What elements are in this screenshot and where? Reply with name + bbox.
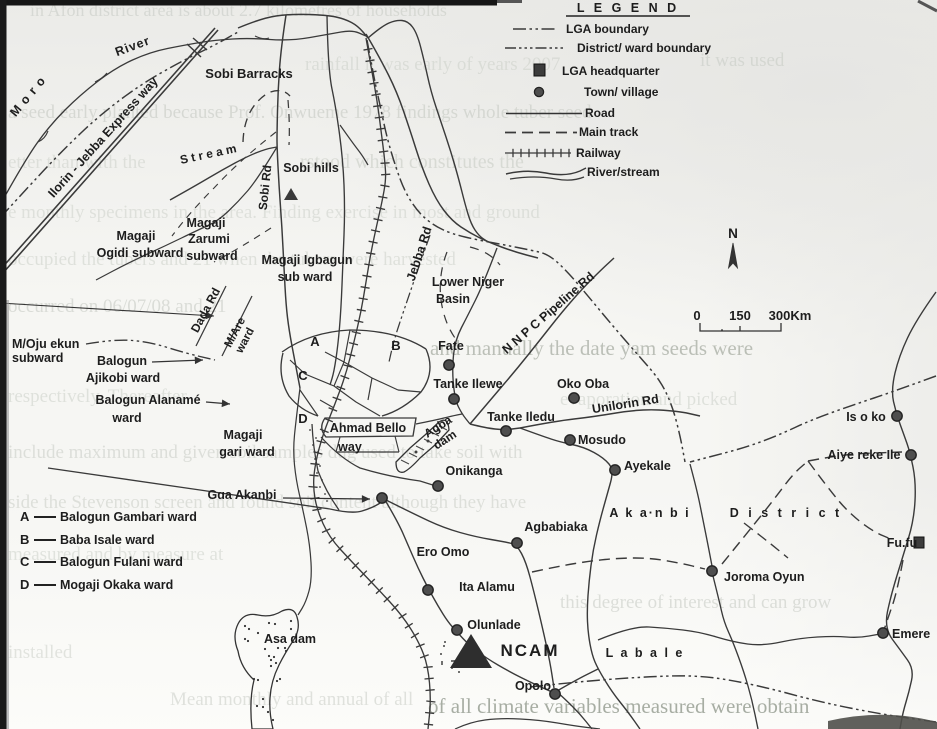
svg-text:Magaji: Magaji (224, 428, 263, 442)
svg-text:Basin: Basin (436, 292, 470, 306)
svg-text:this degree of interest an: this degree of interest and can grow (560, 592, 831, 613)
svg-text:way: way (337, 440, 362, 454)
svg-text:Agbabiaka: Agbabiaka (524, 520, 588, 534)
svg-text:L a b a l e: L a b a l e (606, 646, 685, 660)
svg-text:Gɑa Akanbi: Gɑa Akanbi (208, 488, 277, 502)
svg-text:300Km: 300Km (769, 308, 812, 323)
svg-text:Ayekale: Ayekale (624, 459, 671, 473)
svg-text:rainfall it was early of years: rainfall it was early of years 2007 (305, 54, 560, 75)
svg-text:A: A (310, 334, 320, 349)
svg-text:Asa dam: Asa dam (264, 632, 316, 646)
svg-text:River/stream: River/stream (587, 165, 660, 179)
svg-text:subward: subward (186, 249, 237, 263)
svg-text:Opolo: Opolo (515, 679, 551, 693)
svg-text:0: 0 (693, 308, 700, 323)
svg-text:Is o ko: Is o ko (846, 410, 886, 424)
svg-text:Fu.fu: Fu.fu (887, 536, 918, 550)
svg-text:Main track: Main track (579, 125, 639, 139)
svg-text:Ajikobi ward: Ajikobi ward (86, 371, 160, 385)
svg-text:Olunlade: Olunlade (467, 618, 521, 632)
svg-text:Balogun Fulani ward: Balogun Fulani ward (60, 555, 183, 569)
svg-text:Fate: Fate (438, 339, 464, 353)
svg-text:Sobi hills: Sobi hills (283, 161, 339, 175)
svg-text:Oko Oba: Oko Oba (557, 377, 610, 391)
svg-text:M/Oju ekun: M/Oju ekun (12, 337, 79, 351)
svg-text:Ahmad Bello: Ahmad Bello (330, 421, 407, 435)
svg-text:N: N (728, 226, 738, 241)
svg-text:D: D (20, 577, 29, 592)
svg-text:B: B (20, 532, 29, 547)
svg-text:and manually the date yam seed: and manually the date yam seeds were (430, 336, 753, 360)
svg-text:Road: Road (585, 106, 615, 120)
svg-text:e monthly specimens in the: e monthly specimens in the area. Finding… (8, 202, 540, 223)
svg-text:A k a·n b i: A k a·n b i (609, 506, 690, 520)
svg-text:A: A (20, 509, 30, 524)
svg-text:Lower Niger: Lower Niger (432, 275, 504, 289)
svg-text:Mean monthly and annual of: Mean monthly and annual of all (170, 689, 413, 710)
svg-text:Town/ village: Town/ village (584, 85, 659, 99)
svg-text:L E G E N D: L E G E N D (577, 1, 679, 15)
svg-text:Mosudo: Mosudo (578, 433, 626, 447)
svg-text:Baba Isale ward: Baba Isale ward (60, 533, 155, 547)
svg-text:Emere: Emere (892, 627, 930, 641)
svg-text:Joroma Oyun: Joroma Oyun (724, 570, 805, 584)
svg-text:District/ ward boundary: District/ ward boundary (577, 41, 711, 55)
svg-text:ward: ward (111, 411, 141, 425)
svg-text:subward: subward (12, 351, 63, 365)
svg-text:Ita Alamu: Ita Alamu (459, 580, 515, 594)
svg-text:C: C (298, 368, 308, 383)
svg-text:Balogun Alanamé: Balogun Alanamé (95, 393, 200, 407)
svg-text:Magaji: Magaji (117, 229, 156, 243)
svg-text:NCAM: NCAM (501, 641, 560, 660)
svg-text:C: C (20, 554, 30, 569)
svg-text:occurred on 06/07/08 and 2: occurred on 06/07/08 and 21 (8, 296, 226, 317)
svg-text:installed: installed (8, 642, 73, 663)
svg-text:D: D (298, 411, 307, 426)
svg-text:Ero Omo: Ero Omo (417, 545, 470, 559)
svg-text:D i s t r i c t: D i s t r i c t (730, 506, 842, 520)
svg-text:Tanke Ilewe: Tanke Ilewe (433, 377, 502, 391)
svg-text:Zarumi: Zarumi (188, 232, 230, 246)
svg-text:Magaji: Magaji (187, 216, 226, 230)
svg-text:Mogaji Okaka ward: Mogaji Okaka ward (60, 578, 173, 592)
svg-text:150: 150 (729, 308, 751, 323)
svg-text:B: B (391, 338, 400, 353)
svg-text:Sobi Barracks: Sobi Barracks (205, 66, 292, 81)
svg-text:Magaji Igbagun: Magaji Igbagun (262, 253, 353, 267)
svg-text:sub ward: sub ward (278, 270, 333, 284)
svg-text:Tanke Iledu: Tanke Iledu (487, 410, 555, 424)
svg-text:Balogun: Balogun (97, 354, 147, 368)
svg-text:it was used: it was used (700, 50, 785, 71)
svg-text:Ogidi subward: Ogidi subward (97, 246, 184, 260)
svg-text:Balogun Gambari ward: Balogun Gambari ward (60, 510, 197, 524)
svg-text:Railway: Railway (576, 146, 621, 160)
svg-text:gari ward: gari ward (219, 445, 275, 459)
svg-text:LGA headquarter: LGA headquarter (562, 64, 660, 78)
svg-text:LGA boundary: LGA boundary (566, 22, 649, 36)
svg-text:Onikanga: Onikanga (446, 464, 504, 478)
svg-text:Aiye reke Ile: Aiye reke Ile (828, 448, 901, 462)
